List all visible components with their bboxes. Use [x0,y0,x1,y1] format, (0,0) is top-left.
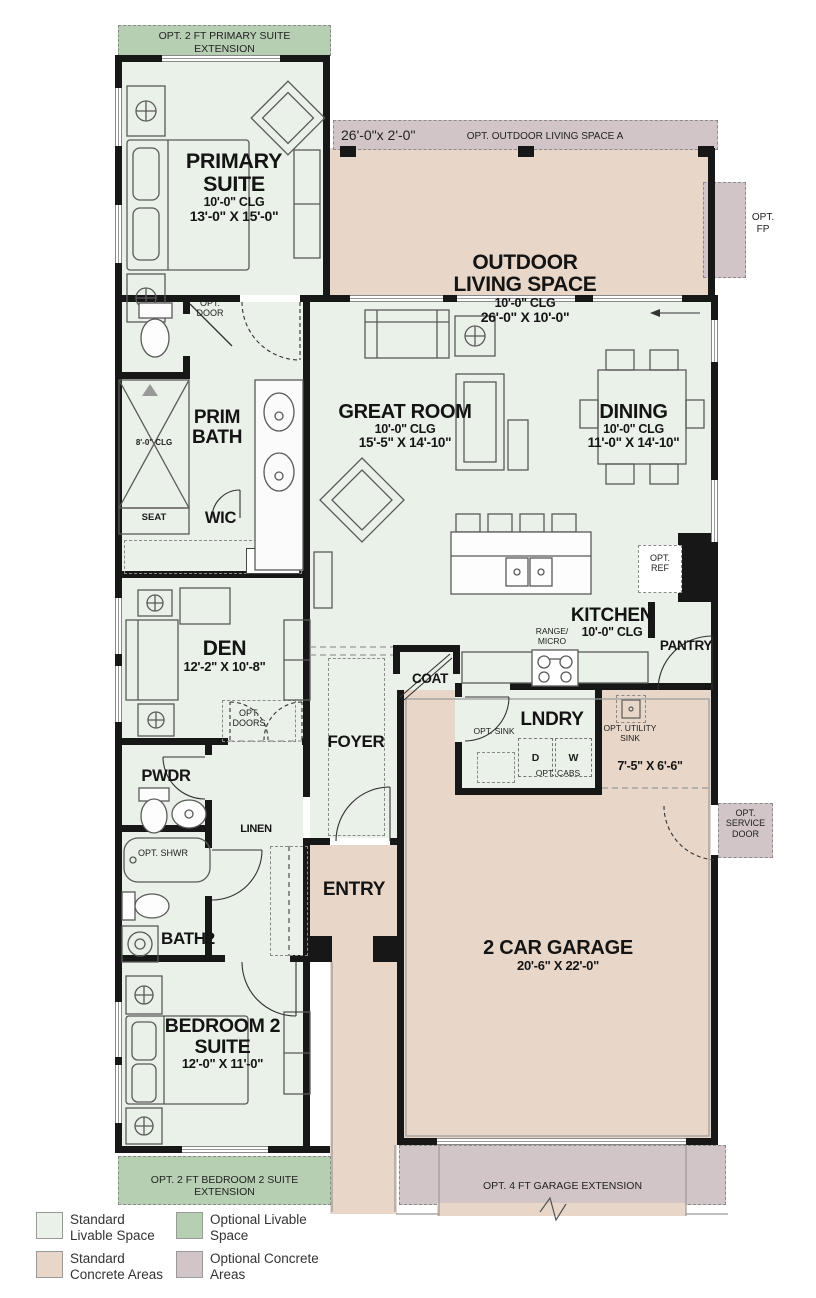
dryer-label: D [532,752,540,764]
patio-post [340,146,356,157]
room-label-great-room: GREAT ROOM 10'-0" CLG 15'-5" X 14'-10" [330,402,480,451]
entry-post [373,936,397,962]
window [115,598,122,654]
wall [397,1138,441,1145]
room-label-prim-bath: PRIM BATH [186,408,248,448]
room-label-laundry: LNDRY [508,710,596,730]
legend-swatch-standard-concrete [36,1251,63,1278]
wall [115,955,225,962]
driveway-strip [437,1203,686,1216]
room-label-entry: ENTRY [318,880,390,900]
outdoor-banner-label: OPT. OUTDOOR LIVING SPACE A [420,131,670,142]
legend-swatch-optional-concrete [176,1251,203,1278]
wall [323,55,330,302]
garage-extension-label: OPT. 4 FT GARAGE EXTENSION [430,1180,695,1192]
wall [711,542,718,690]
room-label-outdoor-living: OUTDOOR LIVING SPACE 10'-0" CLG 26'-0" X… [425,252,625,325]
opt-service-door-label: OPT. SERVICE DOOR [721,808,770,839]
legend-swatch-optional-livable [176,1212,203,1239]
legend-label-optional-livable: Optional Livable Space [210,1212,315,1244]
room-label-coat: COAT [400,672,460,686]
opt-doors-label: OPT. DOORS [224,708,274,729]
opt-shwr-label: OPT. SHWR [134,848,192,858]
room-label-bedroom2: BEDROOM 2 SUITE 12'-0" X 11'-0" [150,1016,295,1071]
wall [115,372,190,379]
utility-dims: 7'-5" X 6'-6" [600,760,700,773]
opt-cabs-label: OPT. CABS [524,769,592,779]
legend-swatch-standard-livable [36,1212,63,1239]
room-label-pantry: PANTRY [654,639,718,653]
wall [711,690,718,805]
room-label-dining: DINING 10'-0" CLG 11'-0" X 14'-10" [570,402,697,451]
wall [302,738,310,745]
legend-label-optional-concrete: Optional Concrete Areas [210,1251,320,1283]
wall [510,683,718,690]
opt-sink-box [477,752,515,783]
wall [455,788,602,795]
floor-plan: OPT. 2 FT PRIMARY SUITE EXTENSION 26'-0"… [0,0,816,1298]
shower-ceiling-label: 8'-0" CLG [126,438,182,447]
patio-post [698,146,714,157]
window [115,88,122,146]
dishwasher-label: DW [563,568,581,580]
room-label-primary-suite: PRIMARY SUITE 10'-0" CLG 13'-0" X 15'-0" [150,150,318,224]
room-label-wic: WIC [193,510,248,527]
room-label-foyer: FOYER [320,733,392,751]
room-label-garage: 2 CAR GARAGE 20'-6" X 22'-0" [462,938,654,973]
bedroom2-extension-label: OPT. 2 FT BEDROOM 2 SUITE EXTENSION [122,1174,327,1198]
wall [303,295,310,745]
garage-extension-area [399,1145,726,1205]
opt-door-label: OPT. DOOR [188,298,232,319]
wall [390,838,397,845]
opt-ref-label: OPT. REF [640,553,680,574]
wall [300,295,350,302]
window [115,205,122,263]
wall [682,1138,718,1145]
range-micro-label: RANGE/ MICRO [524,627,580,647]
wall [205,800,212,848]
wall [455,690,462,697]
shelf-label: SH [266,556,279,567]
patio-post [518,146,534,157]
seat-label: SEAT [126,513,182,524]
dishwasher-box: DW [553,557,590,590]
walkway-floor [330,962,397,1214]
room-label-den: DEN 12'-2" X 10'-8" [172,638,277,674]
window [115,666,122,722]
room-label-bath2: BATH2 [146,930,230,948]
washer-label: W [569,752,579,764]
opt-utility-sink-label: OPT. UTILITY SINK [602,724,658,744]
wall [115,825,212,832]
linen-shelving [270,846,308,956]
window [162,55,280,62]
wall [205,745,212,755]
primary-suite-extension-label: OPT. 2 FT PRIMARY SUITE EXTENSION [128,30,321,55]
room-label-linen: LINEN [230,824,282,836]
window [115,1065,122,1123]
window [182,1146,268,1153]
window [115,1002,122,1057]
wall [711,855,718,1145]
wall [678,533,711,602]
wall [303,745,310,797]
entry-post [308,936,332,962]
wall [393,645,460,652]
legend-label-standard-concrete: Standard Concrete Areas [70,1251,180,1283]
wall [115,738,228,745]
wall [303,962,310,1146]
wic-shelf-box: SH [246,548,300,574]
utility-sink-box [616,695,646,723]
wall [290,955,310,962]
wall [393,652,400,674]
window [711,480,718,542]
wall [453,652,460,674]
wall [310,838,330,845]
legend-label-standard-livable: Standard Livable Space [70,1212,170,1244]
wall [397,690,404,1145]
wall [711,362,718,480]
window [711,320,718,362]
wall [708,148,715,302]
room-label-powder: PWDR [126,768,206,785]
opt-fireplace-label: OPT. FP [747,212,779,235]
wall [595,690,602,795]
garage-door [437,1138,686,1145]
opt-sink-label: OPT. SINK [472,727,516,737]
